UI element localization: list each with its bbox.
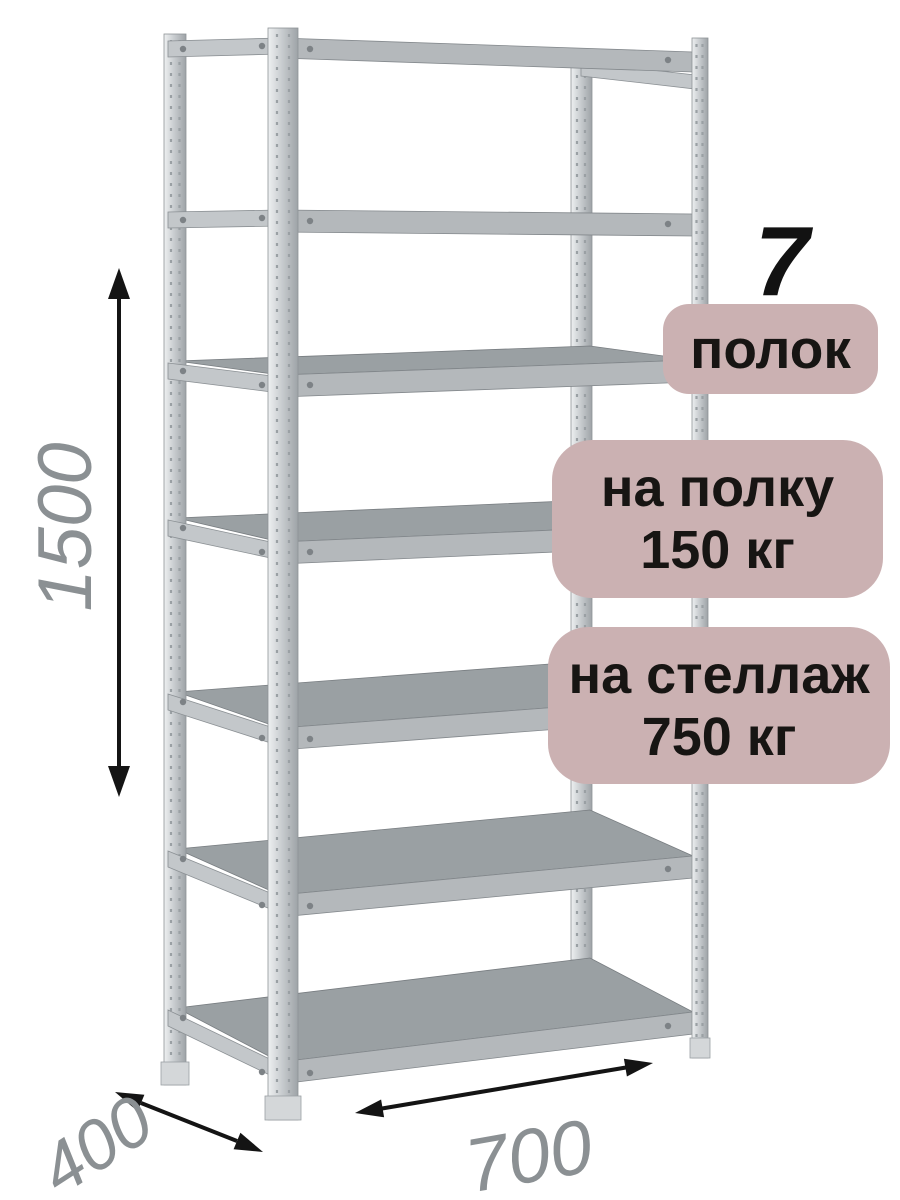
shelving-unit-illustration (0, 0, 900, 1200)
height-dimension-label: 1500 (23, 397, 109, 657)
rack-load-badge: на стеллаж 750 кг (548, 627, 890, 784)
rack-post-front-left (265, 28, 301, 1120)
shelf-load-badge: на полку 150 кг (552, 440, 883, 598)
product-image: 1500 400 700 7 полок на полку 150 кг на … (0, 0, 900, 1200)
rack-post-rear-left (161, 34, 189, 1085)
rack-load-line1: на стеллаж (568, 644, 869, 706)
shelf-count-badge: полок (663, 304, 878, 394)
shelf-load-line1: на полку (601, 457, 834, 519)
shelf-count-label: полок (690, 317, 851, 381)
shelf-load-line2: 150 кг (640, 519, 795, 581)
height-dimension-arrow (108, 268, 130, 797)
rack-load-line2: 750 кг (642, 706, 797, 768)
shelf-count-number: 7 (726, 212, 838, 310)
